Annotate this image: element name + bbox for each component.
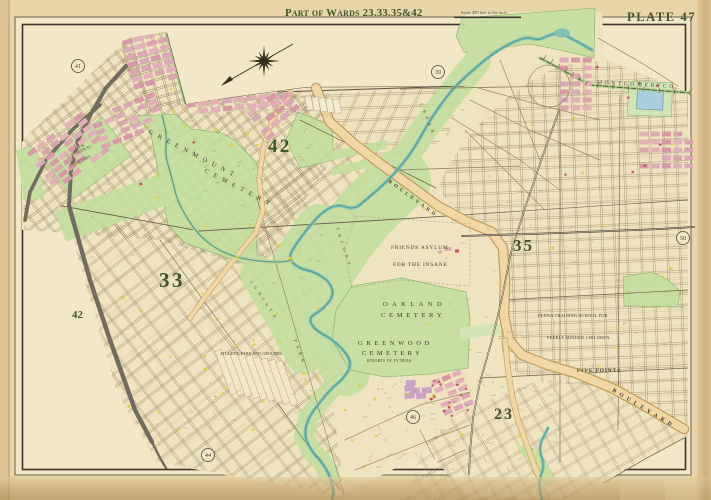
svg-text:PLATE 47: PLATE 47: [627, 10, 696, 24]
svg-text:35: 35: [513, 236, 534, 255]
svg-text:PART OF WARDS 23.33.35&42: PART OF WARDS 23.33.35&42: [285, 7, 422, 19]
svg-text:FOR THE INSANE: FOR THE INSANE: [393, 262, 448, 268]
svg-text:50: 50: [680, 235, 686, 242]
svg-text:42: 42: [72, 309, 84, 321]
svg-text:Scale 400 feet to the inch: Scale 400 feet to the inch: [461, 10, 507, 15]
svg-text:41: 41: [75, 63, 81, 70]
svg-text:23: 23: [494, 406, 514, 423]
svg-text:39: 39: [435, 69, 441, 76]
svg-text:KNIGHTS OF PYTHIAS: KNIGHTS OF PYTHIAS: [367, 359, 412, 363]
svg-text:ATHLETIC PARK AND GROUNDS: ATHLETIC PARK AND GROUNDS: [220, 352, 282, 356]
svg-text:33: 33: [159, 268, 185, 292]
svg-text:44: 44: [205, 452, 211, 459]
svg-text:C E M E T E R Y: C E M E T E R Y: [362, 350, 421, 357]
svg-text:FRIENDS ASYLUM: FRIENDS ASYLUM: [391, 245, 448, 251]
svg-text:C E M E T E R Y: C E M E T E R Y: [381, 312, 443, 319]
svg-text:42: 42: [268, 136, 291, 157]
svg-text:O A K L A N D: O A K L A N D: [383, 301, 443, 308]
svg-text:FEEBLE MINDED CHILDREN: FEEBLE MINDED CHILDREN: [547, 335, 610, 340]
svg-text:PENNA TRAINING SCHOOL FOR: PENNA TRAINING SCHOOL FOR: [538, 313, 608, 318]
svg-text:46: 46: [410, 414, 416, 421]
svg-text:FIVE POINTS: FIVE POINTS: [577, 368, 621, 374]
svg-text:G R E E N W O O D: G R E E N W O O D: [358, 340, 430, 347]
